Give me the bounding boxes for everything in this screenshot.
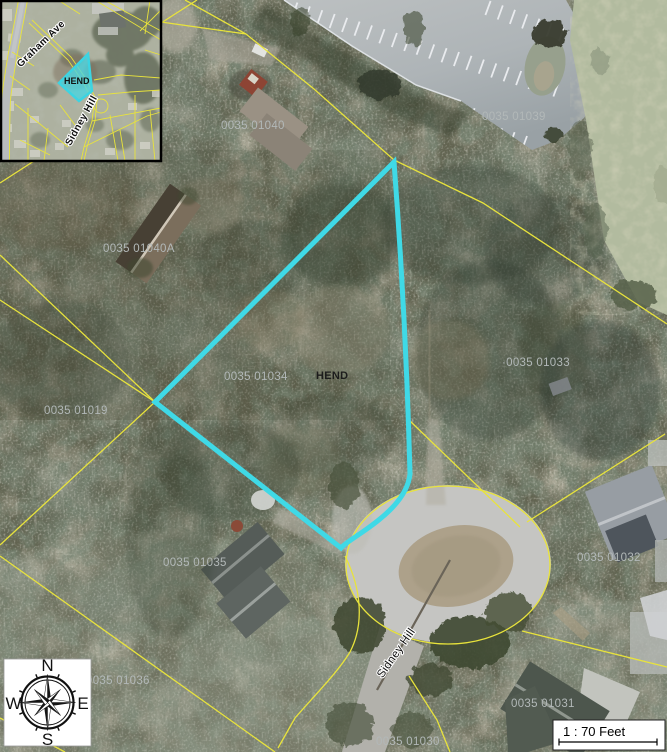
svg-text:0035 01040: 0035 01040 [221, 120, 285, 132]
svg-text:0035 01040A: 0035 01040A [103, 243, 175, 255]
svg-text:S: S [42, 730, 53, 749]
svg-text:HEND: HEND [316, 370, 348, 382]
svg-text:0035 01034: 0035 01034 [224, 371, 288, 383]
svg-text:0035 01031: 0035 01031 [511, 698, 575, 710]
svg-text:0035 01035: 0035 01035 [163, 557, 227, 569]
svg-text:E: E [77, 694, 88, 713]
svg-text:0035 01032: 0035 01032 [577, 552, 641, 564]
svg-text:·0035 01033: ·0035 01033 [502, 357, 570, 369]
svg-text:0035 01019: 0035 01019 [44, 405, 108, 417]
svg-text:0035 01039: 0035 01039 [482, 111, 546, 123]
svg-text:W: W [5, 694, 21, 713]
svg-text:0035 01036: 0035 01036 [86, 675, 150, 687]
svg-text:1 : 70 Feet: 1 : 70 Feet [563, 724, 626, 739]
svg-text:0035 01030: 0035 01030 [376, 736, 440, 748]
svg-text:N: N [41, 656, 53, 675]
svg-text:HEND: HEND [64, 76, 90, 86]
